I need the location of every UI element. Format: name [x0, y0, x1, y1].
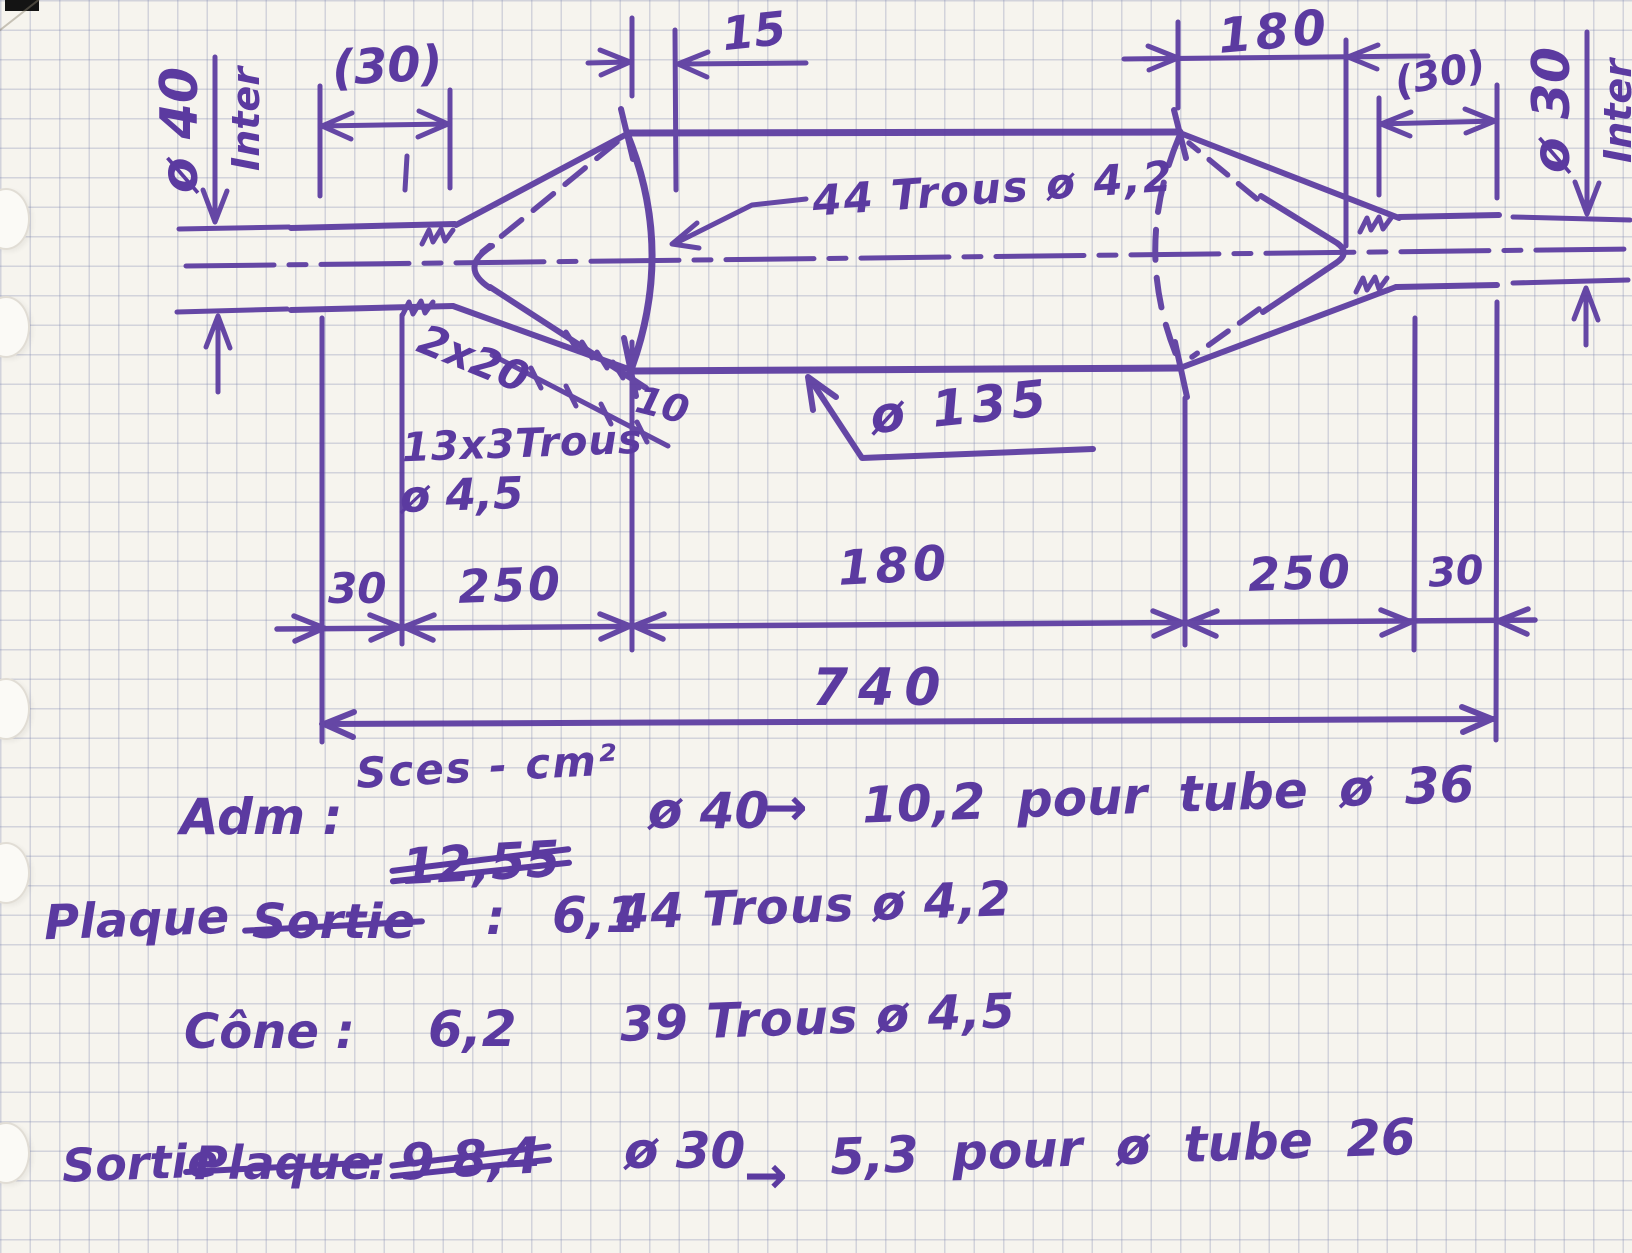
- note-row1-struck-value: 12,55: [401, 834, 562, 892]
- leader-44-trous: [672, 199, 806, 248]
- note-row3-desc: 39 Trous ø 4,5: [619, 987, 1016, 1049]
- bottom-dim-line: [277, 609, 1535, 641]
- note-row1-label: Adm :: [180, 792, 342, 842]
- dim-label-30-left: 30: [328, 568, 386, 610]
- note-row2-desc: 44 Trous ø 4,2: [615, 875, 1012, 937]
- centerline: [186, 249, 1632, 266]
- dim-label-740: 740: [812, 662, 951, 714]
- dim-label-dia40: ø 40: [154, 60, 206, 200]
- note-row3-label: Cône :: [184, 1008, 355, 1056]
- dim-label-180-top: 180: [1216, 3, 1332, 61]
- dim-label-paren30-left: (30): [331, 39, 444, 93]
- callout-dia45: ø 4,5: [399, 472, 524, 520]
- note-row4-colon: :: [368, 1140, 386, 1186]
- dim-label-250-right: 250: [1247, 548, 1354, 598]
- struck-value: 12,55: [401, 834, 562, 892]
- note-row2-label-struck: Sortie: [252, 898, 415, 946]
- dim-label-inter-right: Inter: [1599, 41, 1632, 181]
- struck-word: Sortie: [252, 898, 415, 946]
- note-row2-label-keep: Plaque: [43, 893, 230, 947]
- callout-13x3-trous: 13x3Trous: [401, 420, 643, 468]
- scanned-sketch-page: ø 40 Inter (30) 15 44 Trous ø 4,2 180 (3…: [0, 0, 1632, 1253]
- note-row4-label-struck: Plaque: [194, 1140, 371, 1186]
- note-row3-value: 6,2: [428, 1004, 517, 1054]
- dim-paren30-right: [1379, 85, 1497, 198]
- struck-word: Plaque: [194, 1140, 371, 1186]
- struck-value: 9 8,4: [399, 1130, 542, 1187]
- dim-label-dia30: ø 30: [1526, 40, 1578, 180]
- dim-label-15: 15: [720, 5, 788, 57]
- note-row4-dia: ø 30: [624, 1126, 745, 1176]
- dim-label-inter-left: Inter: [227, 49, 265, 189]
- note-row1-arrow: →: [764, 782, 808, 834]
- note-row2-colon: :: [486, 894, 505, 942]
- note-row4-arrow: →: [744, 1150, 788, 1202]
- dim-paren30-left: [320, 86, 450, 196]
- note-row1-dia: ø 40: [648, 786, 769, 836]
- weld-squiggles: [402, 217, 1391, 316]
- note-row4-struck-value: 9 8,4: [399, 1130, 542, 1187]
- dim-label-180-bottom: 180: [837, 539, 952, 593]
- dim-label-30-right: 30: [1427, 550, 1485, 594]
- dim-label-250-left: 250: [457, 560, 564, 610]
